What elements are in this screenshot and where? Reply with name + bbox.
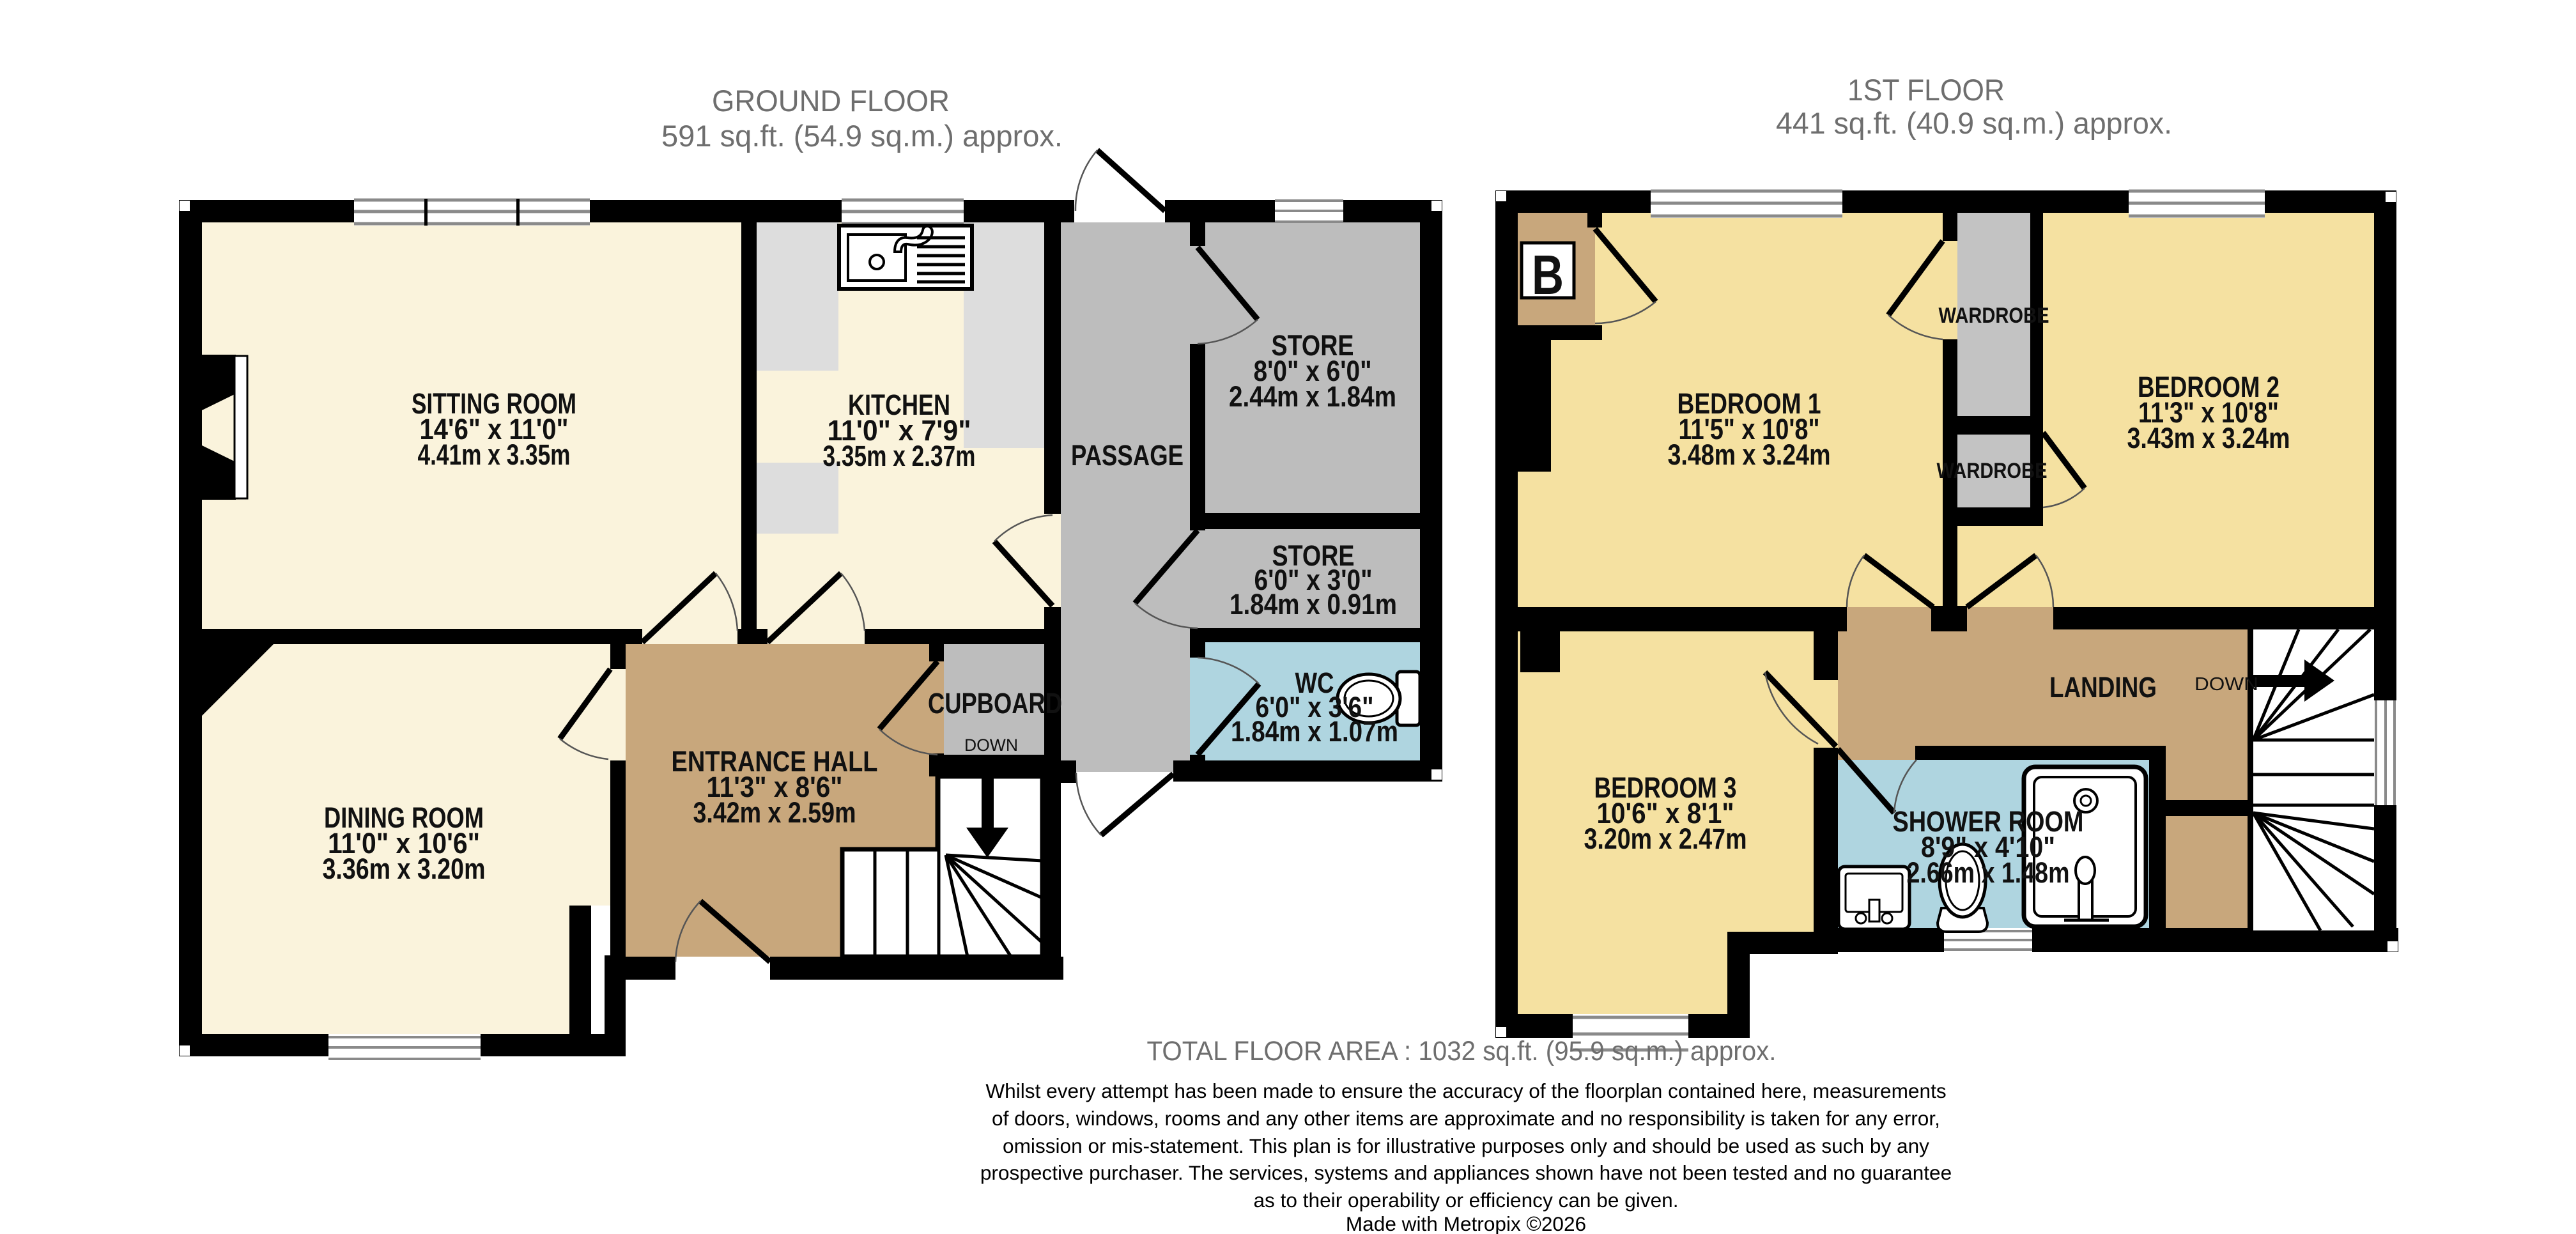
svg-text:4.41m x 3.35m: 4.41m x 3.35m — [418, 438, 571, 471]
svg-text:B: B — [1532, 244, 1564, 306]
svg-text:3.48m x 3.24m: 3.48m x 3.24m — [1668, 438, 1831, 471]
svg-text:PASSAGE: PASSAGE — [1071, 439, 1184, 472]
svg-text:WARDROBE: WARDROBE — [1937, 459, 2048, 483]
svg-text:DOWN: DOWN — [964, 736, 1018, 755]
svg-text:WARDROBE: WARDROBE — [1939, 304, 2049, 328]
svg-text:3.43m x 3.24m: 3.43m x 3.24m — [2127, 422, 2290, 454]
svg-text:3.35m x 2.37m: 3.35m x 2.37m — [823, 440, 976, 472]
svg-text:Whilst every attempt has been: Whilst every attempt has been made to en… — [985, 1079, 1946, 1102]
svg-text:CUPBOARD: CUPBOARD — [928, 687, 1062, 720]
svg-text:TOTAL FLOOR AREA : 1032 sq.ft.: TOTAL FLOOR AREA : 1032 sq.ft. (95.9 sq.… — [1147, 1036, 1777, 1067]
svg-text:omission or mis-statement. Thi: omission or mis-statement. This plan is … — [1003, 1134, 1929, 1157]
svg-text:prospective purchaser. The ser: prospective purchaser. The services, sys… — [980, 1161, 1952, 1184]
svg-text:of doors, windows, rooms and a: of doors, windows, rooms and any other i… — [992, 1107, 1940, 1130]
svg-text:1ST FLOOR: 1ST FLOOR — [1847, 73, 2005, 107]
svg-text:GROUND FLOOR: GROUND FLOOR — [712, 84, 950, 118]
svg-text:LANDING: LANDING — [2049, 671, 2157, 704]
svg-text:591 sq.ft. (54.9 sq.m.) approx: 591 sq.ft. (54.9 sq.m.) approx. — [661, 119, 1063, 153]
svg-text:3.20m x 2.47m: 3.20m x 2.47m — [1584, 822, 1747, 855]
svg-text:2.66m x 1.48m: 2.66m x 1.48m — [1907, 856, 2070, 889]
svg-text:3.42m x 2.59m: 3.42m x 2.59m — [693, 796, 856, 829]
svg-text:3.36m x 3.20m: 3.36m x 3.20m — [323, 852, 486, 885]
svg-text:Made with Metropix ©2026: Made with Metropix ©2026 — [1346, 1212, 1586, 1234]
svg-text:441 sq.ft. (40.9 sq.m.) approx: 441 sq.ft. (40.9 sq.m.) approx. — [1776, 106, 2172, 140]
svg-text:1.84m x 1.07m: 1.84m x 1.07m — [1231, 715, 1398, 748]
svg-text:1.84m x 0.91m: 1.84m x 0.91m — [1230, 588, 1397, 621]
svg-text:as to their operability or eff: as to their operability or efficiency ca… — [1253, 1189, 1678, 1212]
svg-text:DOWN: DOWN — [2194, 674, 2258, 695]
svg-text:2.44m x 1.84m: 2.44m x 1.84m — [1229, 380, 1396, 413]
